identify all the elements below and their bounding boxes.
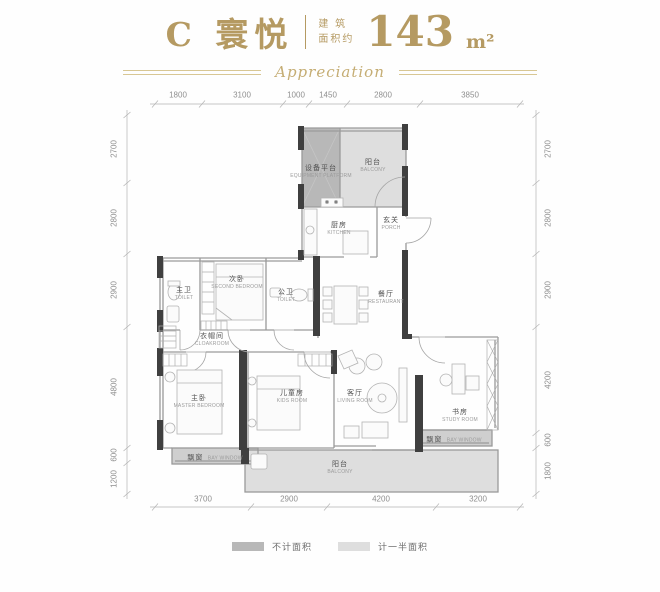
room-kids-room: 儿童房 KIDS ROOM bbox=[277, 389, 307, 405]
room-cloakroom: 衣帽间 CLOAKROOM bbox=[195, 332, 229, 348]
dim-left-4: 4800 bbox=[110, 378, 119, 396]
dim-top-4: 1450 bbox=[319, 91, 337, 100]
room-public-toilet: 公卫 TOILET bbox=[277, 288, 296, 304]
dim-left-1: 2700 bbox=[110, 140, 119, 158]
dim-right-5: 600 bbox=[544, 433, 553, 446]
legend-swatch-not-counted bbox=[232, 542, 264, 551]
dim-left-5: 600 bbox=[110, 448, 119, 461]
room-equipment-platform: 设备平台 EQUIPMENT PLATFORM bbox=[290, 164, 351, 180]
dim-left-2: 2800 bbox=[110, 209, 119, 227]
dim-top-3: 1000 bbox=[287, 91, 305, 100]
dim-right-4: 4200 bbox=[544, 371, 553, 389]
room-second-bedroom: 次卧 SECOND BEDROOM bbox=[211, 275, 262, 291]
room-kitchen: 厨房 KITCHEN bbox=[327, 221, 350, 237]
dim-top-6: 3850 bbox=[461, 91, 479, 100]
legend-swatch-half-counted bbox=[338, 542, 370, 551]
dim-left-3: 2900 bbox=[110, 281, 119, 299]
dim-top-5: 2800 bbox=[374, 91, 392, 100]
room-study-room: 书房 STUDY ROOM bbox=[442, 408, 478, 424]
legend: 不计面积 计一半面积 bbox=[0, 540, 660, 553]
dim-right-2: 2800 bbox=[544, 209, 553, 227]
dim-top-2: 3100 bbox=[233, 91, 251, 100]
room-restaurant: 餐厅 RESTAURANT bbox=[368, 290, 404, 306]
dim-bottom-3: 4200 bbox=[372, 495, 390, 504]
legend-item-not-counted: 不计面积 bbox=[232, 540, 312, 553]
legend-label-not-counted: 不计面积 bbox=[272, 540, 312, 553]
room-balcony-bottom: 阳台 BALCONY bbox=[327, 460, 352, 476]
room-balcony-top: 阳台 BALCONY bbox=[360, 158, 385, 174]
legend-label-half-counted: 计一半面积 bbox=[378, 540, 428, 553]
dim-top-1: 1800 bbox=[169, 91, 187, 100]
legend-item-half-counted: 计一半面积 bbox=[338, 540, 428, 553]
room-bay-window-left: 飘窗 BAY WINDOW bbox=[187, 446, 242, 467]
floorplan-drawing bbox=[0, 0, 660, 592]
dim-bottom-1: 3700 bbox=[194, 495, 212, 504]
dim-left-6: 1200 bbox=[110, 470, 119, 488]
dim-bottom-4: 3200 bbox=[469, 495, 487, 504]
dim-right-1: 2700 bbox=[544, 140, 553, 158]
room-living-room: 客厅 LIVING ROOM bbox=[337, 389, 373, 405]
room-bay-window-right: 飘窗 BAY WINDOW bbox=[426, 428, 481, 449]
floorplan-page: C 寰悦 建 筑 面积约 143 m² Appreciation bbox=[0, 0, 660, 592]
dim-bottom-2: 2900 bbox=[280, 495, 298, 504]
dim-right-6: 1800 bbox=[544, 462, 553, 480]
room-porch: 玄关 PORCH bbox=[381, 216, 400, 232]
dim-right-3: 2900 bbox=[544, 281, 553, 299]
room-master-bedroom: 主卧 MASTER BEDROOM bbox=[174, 394, 225, 410]
room-master-toilet: 主卫 TOILET bbox=[175, 286, 194, 302]
